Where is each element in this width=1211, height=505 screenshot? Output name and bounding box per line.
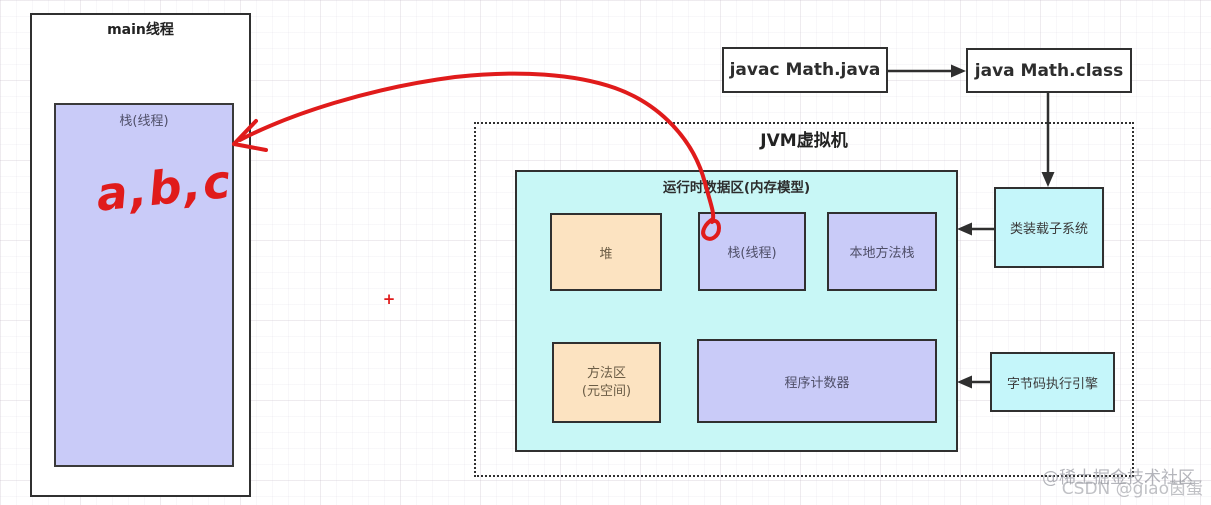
arrow-javac-to-class xyxy=(888,65,966,78)
heap-box: 堆 xyxy=(550,213,662,291)
method-area-box: 方法区 (元空间) xyxy=(552,342,661,423)
red-plus-annotation: + xyxy=(381,291,397,307)
stack-thread-box: 栈(线程) xyxy=(698,212,806,291)
bytecode-execution-engine-box: 字节码执行引擎 xyxy=(990,352,1115,412)
jvm-architecture-diagram: main线程 栈(线程) a,b,c javac Math.java java … xyxy=(0,0,1211,505)
runtime-data-area-box: 运行时数据区(内存模型) 堆 栈(线程) 本地方法栈 方法区 (元空间) 程序计… xyxy=(515,170,958,452)
watermark-csdn: CSDN @giao茵蛋 xyxy=(1062,474,1203,499)
program-counter-box: 程序计数器 xyxy=(697,339,937,423)
jvm-container-box: JVM虚拟机 运行时数据区(内存模型) 堆 栈(线程) 本地方法栈 方法区 (元… xyxy=(474,122,1134,477)
main-thread-box: main线程 栈(线程) a,b,c xyxy=(30,13,251,497)
main-thread-stack-box: 栈(线程) a,b,c xyxy=(54,103,234,467)
main-thread-stack-label: 栈(线程) xyxy=(56,110,232,129)
runtime-data-area-title: 运行时数据区(内存模型) xyxy=(517,176,956,196)
javac-math-java-box: javac Math.java xyxy=(722,47,888,93)
handwritten-abc-annotation: a,b,c xyxy=(94,152,249,221)
class-loader-subsystem-box: 类装载子系统 xyxy=(994,187,1104,268)
jvm-title: JVM虚拟机 xyxy=(476,126,1132,151)
java-math-class-box: java Math.class xyxy=(966,48,1132,93)
native-method-stack-box: 本地方法栈 xyxy=(827,212,937,291)
main-thread-title: main线程 xyxy=(32,19,249,39)
